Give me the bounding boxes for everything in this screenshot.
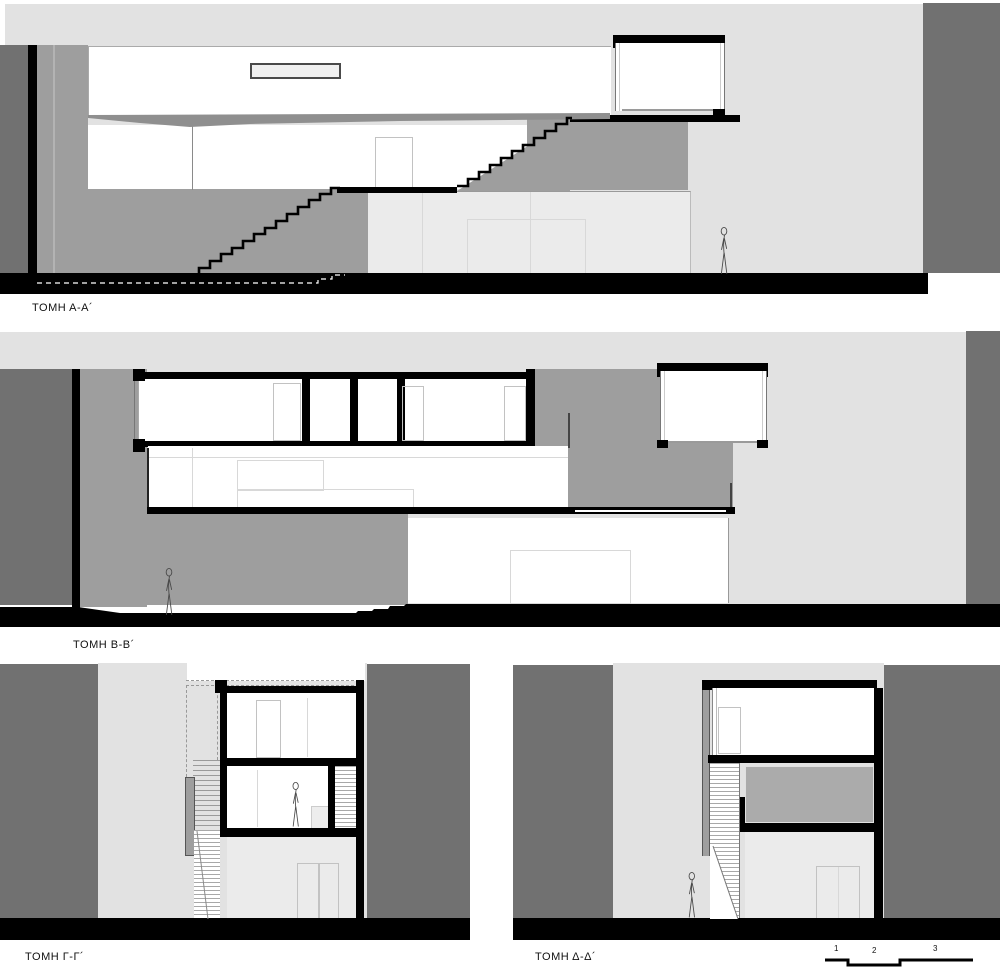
section-b-roofbox-glass-left	[664, 371, 665, 441]
section-g-hidden-stair-hatch	[193, 760, 220, 830]
section-g-middle-room	[227, 766, 328, 828]
section-b-topfloor-wall-line1	[134, 381, 135, 439]
section-g-stair-wall-cut	[328, 766, 335, 828]
section-g-wall-right	[356, 680, 364, 923]
section-b-roofbox-top-slab	[657, 363, 768, 371]
section-d-stair-wall	[702, 690, 710, 856]
section-b-railing-post-1	[568, 413, 570, 448]
section-b-earth-below	[140, 513, 408, 605]
section-b-roofbox-sill	[668, 441, 757, 443]
section-g-middle-wall-line	[257, 770, 258, 827]
section-g-upper-door	[256, 700, 281, 758]
section-g-interior-stair	[335, 766, 356, 828]
section-b-furniture-1	[237, 460, 324, 491]
scale-tick-1: 1	[834, 944, 838, 953]
section-g-upper-wall-line	[307, 698, 308, 757]
scale-tick-3: 3	[933, 944, 937, 953]
section-b-topfloor-wall-right	[526, 369, 535, 452]
section-b-door-outline-3	[504, 386, 526, 441]
section-a-label: ΤΟΜΗ Α-Α´	[32, 302, 93, 314]
section-a-cabinet-outline	[467, 219, 586, 274]
section-d-middle-room-shaded	[745, 766, 874, 823]
section-b-slab-reveal	[575, 510, 726, 512]
section-a-roofbox-sill	[622, 109, 714, 111]
section-a-ground	[0, 273, 928, 294]
section-g-dashed-edge-1	[186, 685, 188, 777]
section-a-interior-wall-line	[192, 117, 193, 190]
section-b-retaining-wall-right	[966, 331, 1000, 605]
section-d-wall-right	[874, 688, 883, 920]
section-a-cut-wall-left	[28, 45, 37, 283]
section-a-terrace-mass	[527, 119, 688, 190]
section-b-middle-wall-left	[147, 448, 149, 512]
section-g-mid-slab	[220, 758, 364, 766]
section-g-garage-door-2	[318, 863, 339, 919]
section-b-label: ΤΟΜΗ Β-Β´	[73, 639, 135, 651]
section-d-upper-wall-line1	[712, 688, 713, 755]
section-b-lower-furniture	[510, 550, 631, 604]
section-d-mid-slab	[708, 755, 877, 763]
section-d-lower-room	[745, 832, 874, 918]
section-a-earth-under-stairs	[88, 188, 368, 273]
section-a-wall-joint-line	[53, 45, 55, 274]
section-b-door-outline-1	[273, 383, 301, 441]
section-b-roofbox-interior	[660, 371, 767, 441]
section-a-roofbox-glass-right	[720, 43, 721, 111]
section-b-roofbox-corner-bl	[657, 440, 668, 448]
section-b-topfloor-roof-slab	[133, 372, 535, 379]
section-d-roof-slab	[708, 680, 877, 688]
section-a-roofbox-glass-left	[619, 43, 620, 111]
section-d-party-wall-left	[513, 665, 613, 918]
section-a-roofbox-corner-br	[713, 109, 725, 120]
section-a-retaining-wall-left	[0, 45, 28, 273]
section-a-panel-line-2	[530, 192, 531, 274]
section-b-roofbox-corner-br	[757, 440, 768, 448]
section-b-middle-wall-line	[192, 448, 193, 507]
section-g-dashed-edge-2	[217, 685, 219, 760]
section-a-earth-left	[37, 45, 88, 274]
scale-bar	[825, 960, 973, 965]
section-g-roof-slab	[220, 686, 364, 693]
section-a-roofbox-interior	[615, 43, 725, 111]
section-b-furniture-2	[237, 489, 414, 508]
section-d-lower-door	[816, 866, 860, 920]
section-d-upper-wall-line2	[716, 688, 717, 755]
section-d-lower-door-split	[838, 867, 839, 919]
section-b-main-floor-slab	[147, 507, 735, 514]
section-b-middle-room	[148, 446, 568, 507]
section-a-landing-slab	[337, 187, 457, 193]
section-b-earth-left	[80, 369, 147, 607]
section-g-sky-notch	[187, 663, 365, 681]
scale-tick-2: 2	[872, 946, 876, 955]
section-b-topfloor-corner-bl	[133, 439, 145, 452]
section-b-topfloor-corner-tl	[133, 369, 145, 381]
section-b-roofbox-glass-right	[762, 371, 763, 441]
section-b-ground	[0, 604, 1000, 627]
section-a-basement-room	[368, 191, 691, 274]
section-g-ground	[0, 918, 470, 940]
section-a-retaining-wall-right	[923, 3, 1000, 273]
section-b-topfloor-wall-line2	[138, 381, 139, 439]
section-g-lower-slab	[220, 828, 364, 837]
section-g-upper-room	[227, 693, 356, 758]
section-b-topfloor-panels	[138, 377, 528, 443]
section-g-garage-door-1	[297, 863, 320, 919]
section-g-party-wall-right	[367, 664, 470, 918]
section-g-exterior-stair	[194, 830, 220, 919]
section-b-cut-wall-left	[72, 369, 80, 610]
section-a-upper-room	[88, 46, 611, 117]
section-g-step-block	[311, 806, 329, 829]
section-a-door-outline	[375, 137, 413, 190]
section-b-mullion-1	[302, 377, 310, 442]
section-a-panel-line-1	[422, 192, 423, 274]
section-a-skylight	[250, 63, 341, 79]
section-d-upper-door	[718, 707, 741, 754]
drawing-sheet: ΤΟΜΗ Α-Α´ ΤΟΜΗ Β-Β´	[0, 0, 1000, 977]
section-b-middle-ceiling-line	[148, 457, 568, 458]
section-b-lower-room	[408, 518, 729, 603]
section-d-exterior-stair	[710, 763, 740, 920]
section-g-garage-room	[227, 837, 356, 918]
section-b-door-outline-2	[402, 386, 424, 441]
section-d-ground	[513, 918, 1000, 940]
section-g-party-wall-left	[0, 664, 98, 918]
section-d-label: ΤΟΜΗ Δ-Δ´	[535, 951, 596, 963]
section-d-party-wall-right	[884, 665, 1000, 918]
section-g-label: ΤΟΜΗ Γ-Γ´	[25, 951, 84, 963]
section-b-mullion-2	[350, 377, 358, 442]
section-a-roofbox-top-slab	[613, 35, 725, 43]
section-b-retaining-wall-left	[0, 369, 72, 605]
section-a-lower-room	[88, 125, 527, 189]
section-b-railing-post-2	[730, 483, 732, 507]
section-d-lower-slab	[740, 823, 877, 832]
section-d-upper-room	[712, 688, 874, 755]
